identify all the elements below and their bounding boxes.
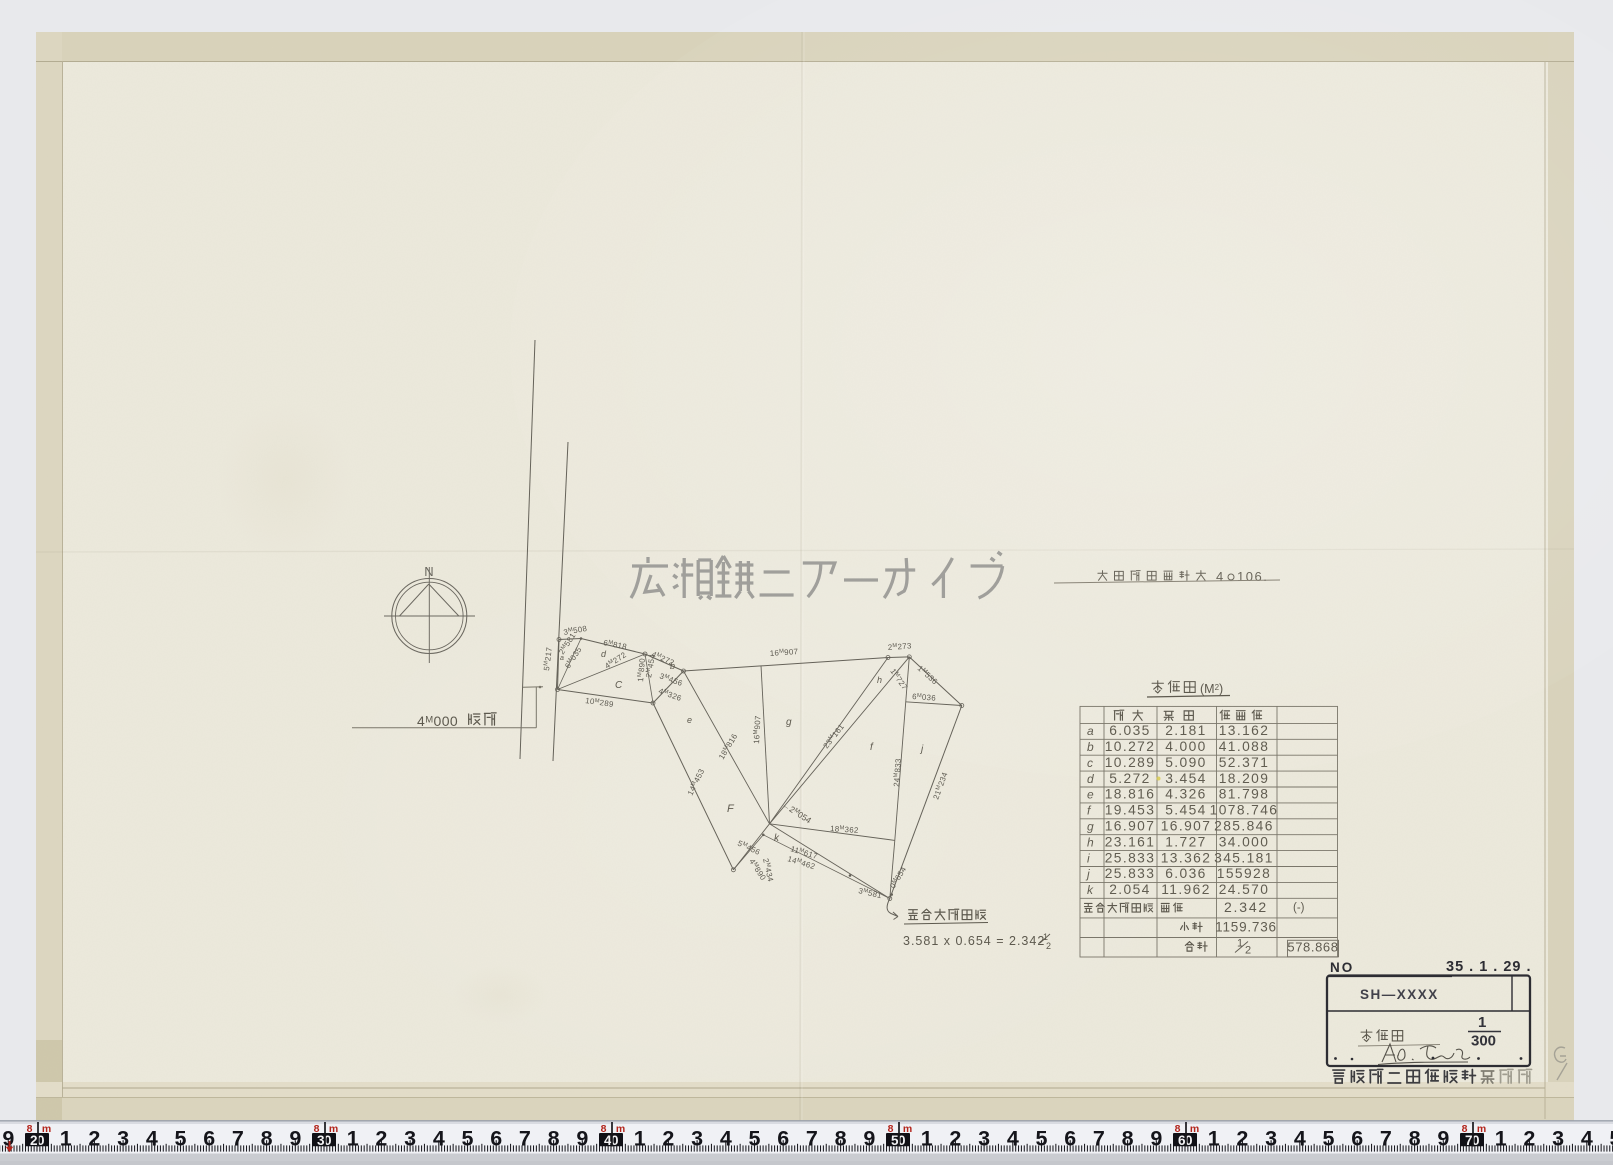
svg-text:g: g xyxy=(1087,820,1094,834)
svg-text:m: m xyxy=(1190,1123,1199,1135)
svg-text:7: 7 xyxy=(1380,1126,1392,1150)
svg-text:60: 60 xyxy=(1178,1133,1192,1148)
svg-text:50: 50 xyxy=(891,1133,905,1148)
svg-text:3.454: 3.454 xyxy=(1165,771,1207,786)
svg-text:1: 1 xyxy=(634,1126,646,1150)
svg-text:4.326: 4.326 xyxy=(1165,787,1207,802)
svg-text:10.272: 10.272 xyxy=(1105,739,1156,754)
svg-text:1: 1 xyxy=(60,1126,72,1150)
svg-text:7: 7 xyxy=(232,1126,244,1150)
svg-text:2: 2 xyxy=(1236,1126,1248,1150)
svg-text:9: 9 xyxy=(1150,1126,1162,1150)
svg-text:1: 1 xyxy=(1478,1014,1486,1031)
svg-text:18.209: 18.209 xyxy=(1219,771,1270,786)
svg-text:155928: 155928 xyxy=(1217,866,1271,881)
svg-text:11.962: 11.962 xyxy=(1161,882,1211,897)
svg-text:23.161: 23.161 xyxy=(1105,834,1156,849)
svg-text:70: 70 xyxy=(1465,1133,1479,1148)
svg-text:5: 5 xyxy=(462,1126,474,1150)
svg-text:2: 2 xyxy=(662,1126,674,1150)
svg-text:9: 9 xyxy=(2,1126,14,1150)
svg-text:3: 3 xyxy=(691,1126,703,1150)
svg-text:6: 6 xyxy=(203,1126,215,1150)
svg-text:d: d xyxy=(1087,772,1094,786)
svg-text:1159.736: 1159.736 xyxy=(1215,920,1277,935)
svg-text:18.816: 18.816 xyxy=(1105,787,1156,802)
svg-text:h: h xyxy=(877,675,882,685)
svg-text:6M036: 6M036 xyxy=(912,692,937,703)
svg-text:6: 6 xyxy=(1064,1126,1076,1150)
svg-text:24.570: 24.570 xyxy=(1219,882,1270,897)
svg-text:8: 8 xyxy=(1462,1123,1468,1135)
svg-text:6: 6 xyxy=(1351,1126,1363,1150)
svg-text:a: a xyxy=(1087,724,1094,738)
svg-text:81.798: 81.798 xyxy=(1219,787,1270,802)
svg-text:2: 2 xyxy=(375,1126,387,1150)
svg-text:5.090: 5.090 xyxy=(1165,755,1207,770)
svg-text:8: 8 xyxy=(888,1123,894,1135)
svg-text:b: b xyxy=(670,661,675,671)
svg-text:52.371: 52.371 xyxy=(1219,755,1270,770)
svg-text:5: 5 xyxy=(1610,1126,1613,1150)
svg-text:3: 3 xyxy=(117,1126,129,1150)
svg-text:7: 7 xyxy=(519,1126,531,1150)
svg-text:8: 8 xyxy=(1409,1126,1421,1150)
svg-text:4.000: 4.000 xyxy=(1165,739,1207,754)
svg-text:2.181: 2.181 xyxy=(1165,723,1207,738)
svg-text:4M000: 4M000 xyxy=(417,713,458,729)
svg-text:7: 7 xyxy=(1093,1126,1105,1150)
svg-text:2: 2 xyxy=(88,1126,100,1150)
svg-text:19.453: 19.453 xyxy=(1105,803,1156,818)
svg-text:4: 4 xyxy=(146,1126,158,1150)
svg-text:5.454: 5.454 xyxy=(1165,803,1207,818)
svg-text:9: 9 xyxy=(863,1126,875,1150)
svg-text:30: 30 xyxy=(317,1133,331,1148)
svg-text:2: 2 xyxy=(1523,1126,1535,1150)
svg-text:4: 4 xyxy=(1216,569,1225,584)
svg-text:5: 5 xyxy=(1036,1126,1048,1150)
svg-text:C: C xyxy=(615,680,623,691)
svg-text:6.036: 6.036 xyxy=(1165,866,1207,881)
svg-text:300: 300 xyxy=(1471,1033,1496,1050)
svg-text:m: m xyxy=(329,1123,338,1135)
svg-text:1: 1 xyxy=(1208,1126,1220,1150)
svg-text:7: 7 xyxy=(806,1126,818,1150)
svg-text:8: 8 xyxy=(601,1123,607,1135)
svg-text:m: m xyxy=(42,1123,51,1135)
svg-text:e: e xyxy=(687,715,692,725)
svg-text:9: 9 xyxy=(289,1126,301,1150)
svg-text:35 . 1 . 29 .: 35 . 1 . 29 . xyxy=(1446,959,1532,975)
svg-text:8: 8 xyxy=(1122,1126,1134,1150)
svg-text:3: 3 xyxy=(1552,1126,1564,1150)
svg-text:16M907: 16M907 xyxy=(752,715,762,744)
svg-text:2: 2 xyxy=(1046,941,1051,951)
svg-text:5.272: 5.272 xyxy=(1109,771,1151,786)
svg-text:8: 8 xyxy=(261,1126,273,1150)
svg-text:106.: 106. xyxy=(1237,569,1268,584)
svg-text:c: c xyxy=(1087,756,1093,770)
svg-text:g: g xyxy=(786,717,792,728)
svg-text:8: 8 xyxy=(548,1126,560,1150)
svg-text:NO: NO xyxy=(1330,960,1354,975)
svg-text:345.181: 345.181 xyxy=(1214,850,1274,865)
svg-text:e: e xyxy=(1087,788,1094,802)
svg-text:m: m xyxy=(903,1123,912,1135)
svg-text:(M2): (M2) xyxy=(1200,682,1223,696)
svg-text:3: 3 xyxy=(1265,1126,1277,1150)
svg-text:40: 40 xyxy=(604,1133,618,1148)
svg-text:20: 20 xyxy=(30,1133,44,1148)
svg-text:a: a xyxy=(560,655,564,662)
svg-text:i: i xyxy=(1087,851,1090,865)
svg-text:b: b xyxy=(1087,740,1094,754)
svg-text:4: 4 xyxy=(1007,1126,1019,1150)
svg-text:(-): (-) xyxy=(1293,902,1305,914)
svg-text:9: 9 xyxy=(1437,1126,1449,1150)
svg-text:m: m xyxy=(1477,1123,1486,1135)
svg-text:4: 4 xyxy=(720,1126,732,1150)
svg-text:1: 1 xyxy=(921,1126,933,1150)
svg-text:3.581 x 0.654 = 2.342: 3.581 x 0.654 = 2.342 xyxy=(903,934,1045,948)
svg-text:16.907: 16.907 xyxy=(1161,819,1212,834)
svg-text:1.727: 1.727 xyxy=(1165,834,1207,849)
svg-text:1: 1 xyxy=(1495,1126,1507,1150)
svg-text:1078.746: 1078.746 xyxy=(1210,803,1279,818)
svg-text:6: 6 xyxy=(490,1126,502,1150)
svg-text:2M273: 2M273 xyxy=(888,641,913,652)
svg-text:4: 4 xyxy=(1294,1126,1306,1150)
svg-text:8: 8 xyxy=(1175,1123,1181,1135)
svg-text:578.868: 578.868 xyxy=(1287,940,1338,955)
svg-text:m: m xyxy=(616,1123,625,1135)
svg-text:2.342: 2.342 xyxy=(1224,899,1268,915)
svg-text:6.035: 6.035 xyxy=(1109,723,1151,738)
svg-text:1: 1 xyxy=(347,1126,359,1150)
svg-text:8: 8 xyxy=(835,1126,847,1150)
svg-text:5: 5 xyxy=(749,1126,761,1150)
svg-text:9: 9 xyxy=(576,1126,588,1150)
svg-text:4: 4 xyxy=(1581,1126,1593,1150)
svg-text:13.362: 13.362 xyxy=(1161,850,1212,865)
svg-text:k: k xyxy=(1087,883,1094,897)
svg-text:13.162: 13.162 xyxy=(1219,723,1270,738)
svg-text:SH—XXXX: SH—XXXX xyxy=(1360,987,1439,1002)
svg-text:25.833: 25.833 xyxy=(1105,866,1156,881)
svg-text:2.054: 2.054 xyxy=(1109,882,1151,897)
svg-text:h: h xyxy=(1087,835,1094,849)
svg-text:3: 3 xyxy=(404,1126,416,1150)
svg-text:4: 4 xyxy=(433,1126,445,1150)
svg-text:3: 3 xyxy=(978,1126,990,1150)
svg-text:8: 8 xyxy=(27,1123,33,1135)
svg-text:5: 5 xyxy=(1323,1126,1335,1150)
svg-text:6: 6 xyxy=(777,1126,789,1150)
svg-text:41.088: 41.088 xyxy=(1219,739,1270,754)
svg-text:285.846: 285.846 xyxy=(1214,819,1274,834)
svg-text:8: 8 xyxy=(314,1123,320,1135)
svg-text:10.289: 10.289 xyxy=(1105,755,1156,770)
svg-text:2: 2 xyxy=(1245,945,1251,957)
svg-text:N: N xyxy=(424,564,433,579)
svg-text:34.000: 34.000 xyxy=(1219,834,1270,849)
svg-text:5: 5 xyxy=(175,1126,187,1150)
svg-text:25.833: 25.833 xyxy=(1105,850,1156,865)
svg-text:16.907: 16.907 xyxy=(1105,819,1156,834)
svg-text:2: 2 xyxy=(949,1126,961,1150)
